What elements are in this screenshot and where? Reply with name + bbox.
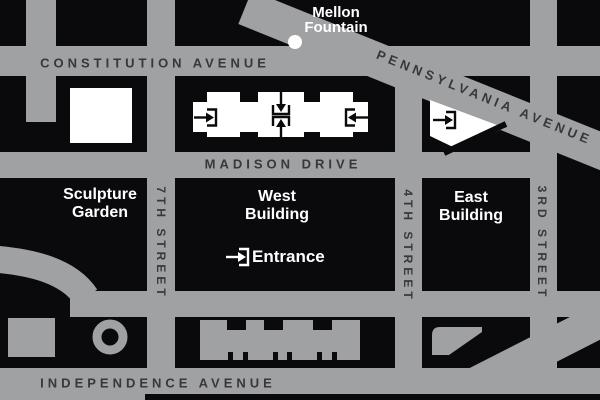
mellon-fountain-label-line1: Mellon bbox=[304, 5, 367, 20]
mellon-fountain-dot bbox=[288, 35, 302, 49]
south-curb-strip bbox=[145, 394, 600, 400]
street-label-independence: INDEPENDENCE AVENUE bbox=[40, 376, 276, 391]
street-label-4th: 4TH STREET bbox=[401, 189, 415, 302]
west-building-label-line2: Building bbox=[245, 206, 309, 224]
building-footprint-square bbox=[8, 318, 55, 357]
map-canvas: CONSTITUTION AVENUE MADISON DRIVE INDEPE… bbox=[0, 0, 600, 400]
east-building-label: East Building bbox=[439, 189, 503, 225]
east-building-label-line2: Building bbox=[439, 207, 503, 225]
street-label-7th: 7TH STREET bbox=[154, 186, 168, 299]
sculpture-garden-pavilion-footprint bbox=[70, 88, 132, 143]
street-label-constitution: CONSTITUTION AVENUE bbox=[40, 56, 270, 71]
building-footprint-notched bbox=[200, 320, 360, 360]
west-building-label: West Building bbox=[245, 188, 309, 224]
street-label-3rd: 3RD STREET bbox=[535, 186, 549, 301]
east-building-label-line1: East bbox=[439, 189, 503, 207]
sculpture-garden-label-line1: Sculpture bbox=[63, 186, 137, 204]
mellon-fountain-label-line2: Fountain bbox=[304, 20, 367, 35]
entrance-label: Entrance bbox=[252, 247, 325, 267]
sculpture-garden-label: Sculpture Garden bbox=[63, 186, 137, 222]
west-building-label-line1: West bbox=[245, 188, 309, 206]
mellon-fountain-label: Mellon Fountain bbox=[304, 5, 367, 35]
street-label-madison: MADISON DRIVE bbox=[205, 157, 362, 172]
sculpture-garden-label-line2: Garden bbox=[63, 204, 137, 222]
